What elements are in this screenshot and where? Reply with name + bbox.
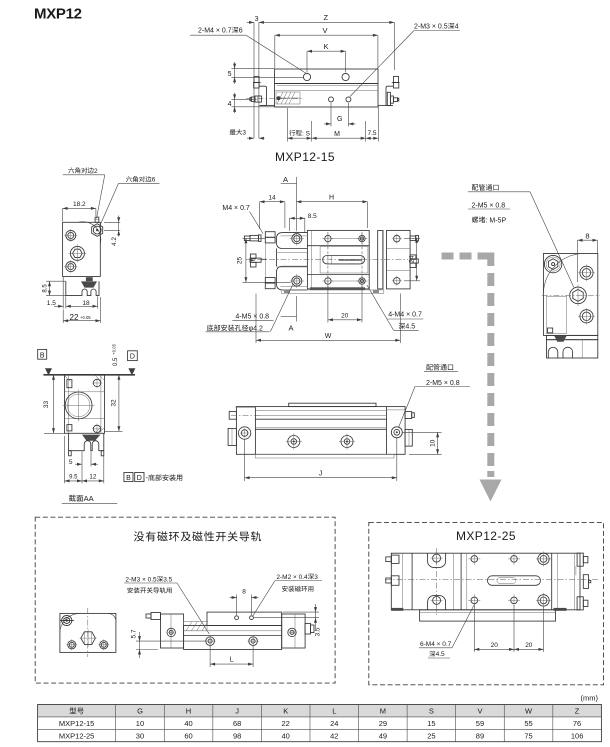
svg-text:MXP12-15: MXP12-15 [59, 719, 94, 728]
svg-text:49: 49 [379, 732, 387, 741]
svg-text:(mm): (mm) [581, 694, 599, 703]
svg-text:MXP12-25: MXP12-25 [59, 732, 94, 741]
svg-text:V: V [478, 707, 483, 716]
svg-text:M4 × 0.7: M4 × 0.7 [222, 205, 250, 212]
svg-text:20: 20 [491, 642, 499, 649]
svg-text:MXP12: MXP12 [34, 6, 82, 23]
svg-text:B: B [40, 352, 45, 359]
svg-text:4-M5 × 0.8: 4-M5 × 0.8 [235, 313, 269, 320]
svg-text:M: M [380, 707, 386, 716]
svg-text:W: W [325, 333, 332, 340]
svg-text:D: D [130, 354, 135, 361]
svg-text:V: V [323, 26, 328, 35]
svg-text:6-M4 × 0.7: 6-M4 × 0.7 [420, 641, 452, 648]
svg-text:30: 30 [136, 732, 144, 741]
svg-text:+0.05: +0.05 [80, 315, 91, 320]
svg-text:22: 22 [70, 313, 79, 322]
svg-text:24: 24 [408, 255, 415, 263]
svg-text:5.7: 5.7 [131, 629, 138, 638]
svg-text:32: 32 [110, 399, 117, 407]
svg-text:4-M4 × 0.7: 4-M4 × 0.7 [388, 312, 422, 319]
svg-text:106: 106 [571, 732, 584, 741]
svg-text:8.5: 8.5 [308, 213, 317, 220]
svg-text:59: 59 [476, 719, 484, 728]
svg-text:25: 25 [427, 732, 435, 741]
svg-text:3: 3 [242, 130, 246, 137]
svg-text:3: 3 [314, 574, 318, 581]
svg-text:42: 42 [330, 732, 338, 741]
svg-text:2-M3 × 0.5: 2-M3 × 0.5 [414, 24, 448, 31]
svg-text:55: 55 [524, 719, 532, 728]
svg-text:5: 5 [228, 71, 232, 78]
svg-text:33: 33 [43, 400, 50, 408]
svg-text:8: 8 [585, 231, 589, 240]
svg-text:Z: Z [575, 707, 580, 716]
svg-text:S: S [429, 707, 434, 716]
svg-text:2-M3 × 0.5: 2-M3 × 0.5 [125, 576, 157, 583]
svg-text:K: K [283, 707, 288, 716]
svg-text:-: - [146, 475, 149, 482]
svg-text:12: 12 [89, 473, 97, 480]
svg-text:4: 4 [455, 24, 459, 31]
svg-text:75: 75 [524, 732, 532, 741]
svg-text:H: H [186, 707, 191, 716]
svg-text:AA: AA [84, 494, 94, 503]
svg-text:1.5: 1.5 [47, 300, 56, 307]
svg-text:22: 22 [282, 719, 290, 728]
svg-text:G: G [137, 707, 143, 716]
svg-text:7.5: 7.5 [368, 130, 377, 137]
svg-text:10: 10 [430, 439, 437, 447]
svg-text:L: L [230, 657, 234, 664]
svg-text:20: 20 [525, 642, 533, 649]
svg-text:: M-5P: : M-5P [486, 217, 507, 224]
svg-text:8: 8 [242, 589, 246, 596]
svg-text:MXP12-15: MXP12-15 [275, 150, 335, 164]
svg-text:4.5: 4.5 [405, 324, 415, 331]
svg-text:: S: : S [302, 130, 311, 137]
svg-text:24: 24 [330, 719, 338, 728]
svg-text:J: J [319, 470, 323, 477]
svg-text:MXP12-25: MXP12-25 [456, 529, 516, 543]
svg-text:29: 29 [379, 719, 387, 728]
svg-text:40: 40 [184, 719, 192, 728]
svg-text:3.5: 3.5 [163, 576, 172, 583]
svg-text:2-M5 × 0.8: 2-M5 × 0.8 [472, 202, 506, 209]
svg-text:9.5: 9.5 [69, 475, 78, 481]
svg-text:89: 89 [476, 732, 484, 741]
svg-text:A: A [289, 324, 294, 333]
svg-text:5: 5 [69, 459, 73, 466]
svg-text:2-M2 × 0.4: 2-M2 × 0.4 [276, 574, 308, 581]
svg-text:18: 18 [82, 300, 90, 307]
svg-text:A: A [283, 175, 288, 184]
svg-text:15: 15 [427, 719, 435, 728]
svg-text:K: K [324, 42, 329, 51]
svg-text:25: 25 [237, 256, 244, 264]
svg-text:8.5: 8.5 [43, 284, 49, 293]
svg-text:60: 60 [184, 732, 192, 741]
svg-text:6: 6 [239, 28, 243, 35]
svg-text:14: 14 [268, 194, 276, 201]
svg-text:M: M [334, 131, 340, 138]
svg-text:W: W [525, 707, 533, 716]
svg-text:2: 2 [94, 168, 98, 175]
svg-text:4.5: 4.5 [436, 651, 445, 658]
svg-text:+0.05: +0.05 [112, 343, 117, 354]
svg-text:3: 3 [255, 16, 259, 23]
svg-text:68: 68 [233, 719, 241, 728]
svg-text:G: G [337, 116, 342, 123]
svg-text:H: H [329, 194, 334, 201]
svg-text:76: 76 [573, 719, 581, 728]
svg-text:18.2: 18.2 [73, 201, 86, 208]
svg-text:4: 4 [228, 101, 232, 108]
svg-text:10: 10 [136, 719, 144, 728]
svg-text:40: 40 [282, 732, 290, 741]
svg-text:J: J [235, 707, 239, 716]
svg-text:L: L [332, 707, 336, 716]
svg-text:D: D [137, 475, 142, 482]
svg-text:3.5: 3.5 [315, 627, 322, 636]
svg-text:Z: Z [324, 13, 329, 22]
svg-text:2-M4 × 0.7: 2-M4 × 0.7 [198, 28, 232, 35]
svg-text:2-M5 × 0.8: 2-M5 × 0.8 [426, 380, 460, 387]
svg-text:6: 6 [152, 177, 156, 184]
svg-text:20: 20 [341, 312, 349, 319]
svg-text:0.5: 0.5 [113, 357, 119, 366]
svg-text:98: 98 [233, 732, 241, 741]
svg-text:4.2: 4.2 [111, 237, 118, 246]
svg-text:B: B [126, 475, 131, 482]
